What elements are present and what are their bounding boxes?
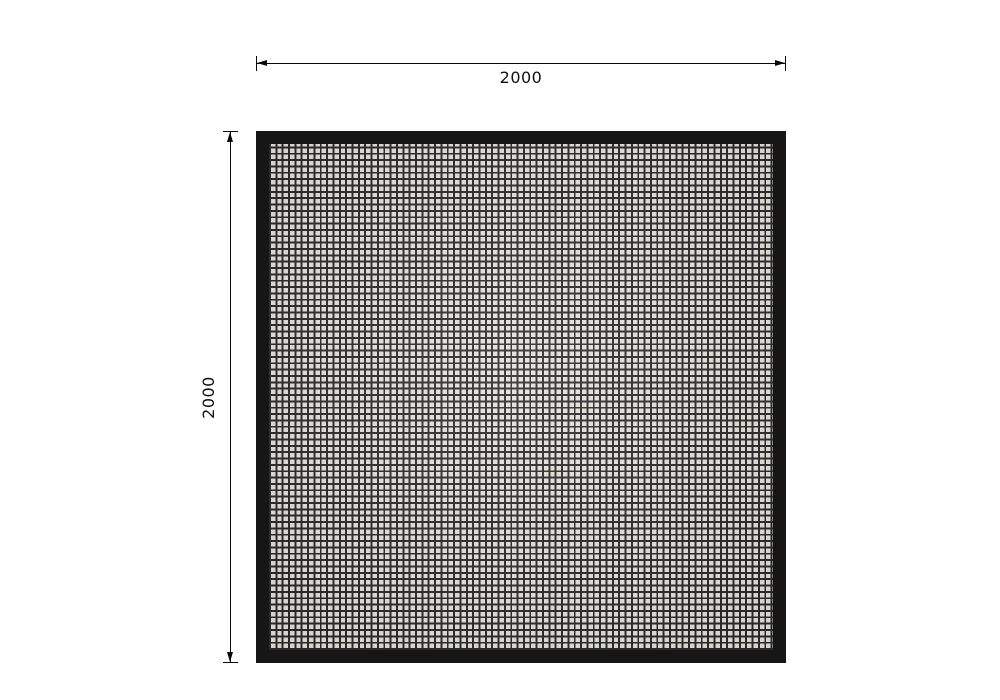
mesh-panel-frame [256,131,786,663]
height-dimension-value-wrap: 2000 [200,131,217,663]
height-dimension-line [223,131,238,663]
arrow-right-icon [775,60,785,66]
height-dimension-value: 2000 [199,376,218,419]
width-dimension-value: 2000 [256,68,786,87]
arrow-left-icon [257,60,267,66]
arrow-down-icon [227,652,233,662]
mesh-grid [269,144,773,650]
dimension-line [230,131,231,663]
technical-drawing-canvas: 2000 2000 [0,0,1000,700]
arrow-up-icon [227,132,233,142]
dimension-line [256,63,786,64]
